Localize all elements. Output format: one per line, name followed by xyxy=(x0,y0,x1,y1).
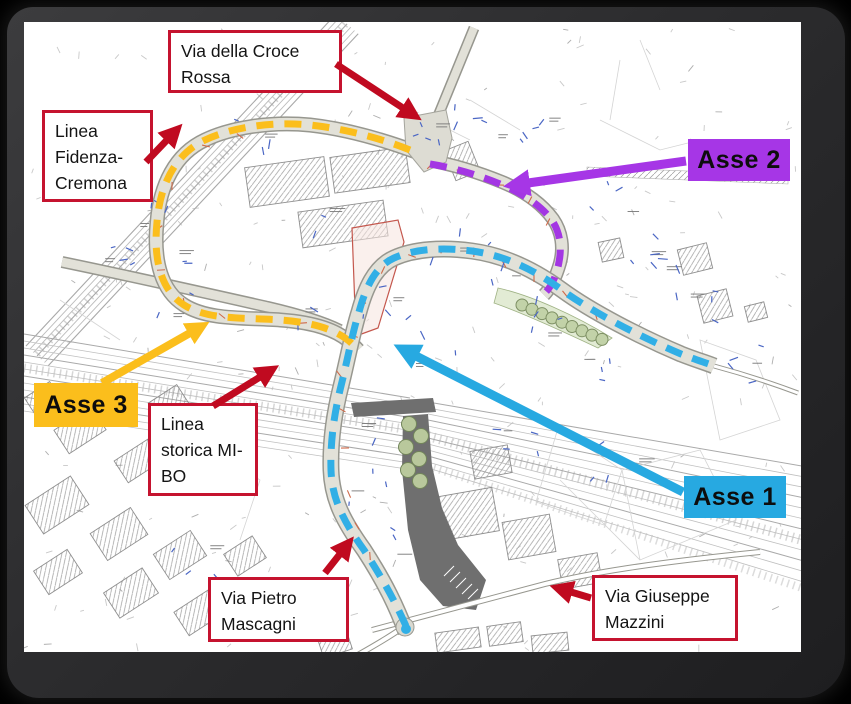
junction-plaza xyxy=(404,110,452,172)
axis-label-asse-3: Asse 3 xyxy=(34,383,138,427)
crosswalk-ticks xyxy=(156,134,597,560)
callout-linea-fidenza-cremona: Linea Fidenza-Cremona xyxy=(42,110,153,202)
screenshot-canvas: Via della Croce Rossa Linea Fidenza-Crem… xyxy=(0,0,851,704)
callout-via-giuseppe-mazzini: Via Giuseppe Mazzini xyxy=(592,575,738,641)
callout-linea-storica-mi-bo: Linea storica MI-BO xyxy=(148,403,258,496)
route-asse-1-endpoint xyxy=(401,624,411,634)
callout-via-pietro-mascagni: Via Pietro Mascagni xyxy=(208,577,349,642)
callout-via-della-croce-rossa: Via della Croce Rossa xyxy=(168,30,342,93)
axis-label-asse-1: Asse 1 xyxy=(684,476,786,518)
axis-label-asse-2: Asse 2 xyxy=(688,139,790,181)
